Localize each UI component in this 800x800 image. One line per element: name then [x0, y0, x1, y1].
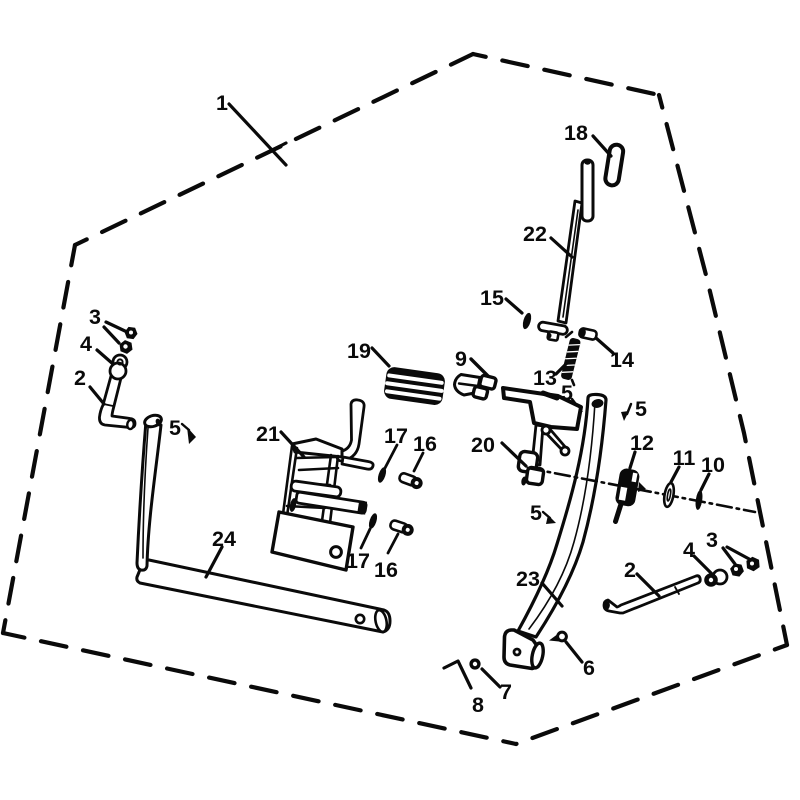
- svg-text:15: 15: [480, 286, 504, 310]
- svg-text:8: 8: [472, 693, 484, 717]
- svg-text:16: 16: [413, 432, 437, 456]
- svg-text:22: 22: [523, 222, 547, 246]
- svg-text:4: 4: [80, 332, 92, 356]
- svg-text:23: 23: [516, 567, 540, 591]
- svg-text:19: 19: [347, 339, 371, 363]
- svg-text:4: 4: [683, 538, 695, 562]
- svg-text:16: 16: [374, 558, 398, 582]
- svg-text:5: 5: [530, 501, 542, 525]
- svg-text:3: 3: [89, 305, 101, 329]
- svg-text:13: 13: [533, 366, 557, 390]
- svg-text:18: 18: [564, 121, 588, 145]
- svg-text:11: 11: [673, 446, 696, 470]
- svg-text:3: 3: [706, 528, 718, 552]
- svg-text:20: 20: [471, 433, 495, 457]
- svg-text:6: 6: [583, 656, 595, 680]
- svg-text:1: 1: [216, 91, 228, 115]
- svg-text:21: 21: [256, 422, 280, 446]
- svg-text:10: 10: [701, 453, 725, 477]
- svg-text:2: 2: [624, 558, 636, 582]
- svg-text:17: 17: [346, 549, 370, 573]
- svg-text:2: 2: [74, 366, 86, 390]
- svg-text:7: 7: [500, 680, 512, 704]
- svg-text:9: 9: [455, 347, 467, 371]
- svg-text:24: 24: [212, 527, 236, 551]
- svg-text:5: 5: [635, 397, 647, 421]
- svg-text:5: 5: [169, 416, 181, 440]
